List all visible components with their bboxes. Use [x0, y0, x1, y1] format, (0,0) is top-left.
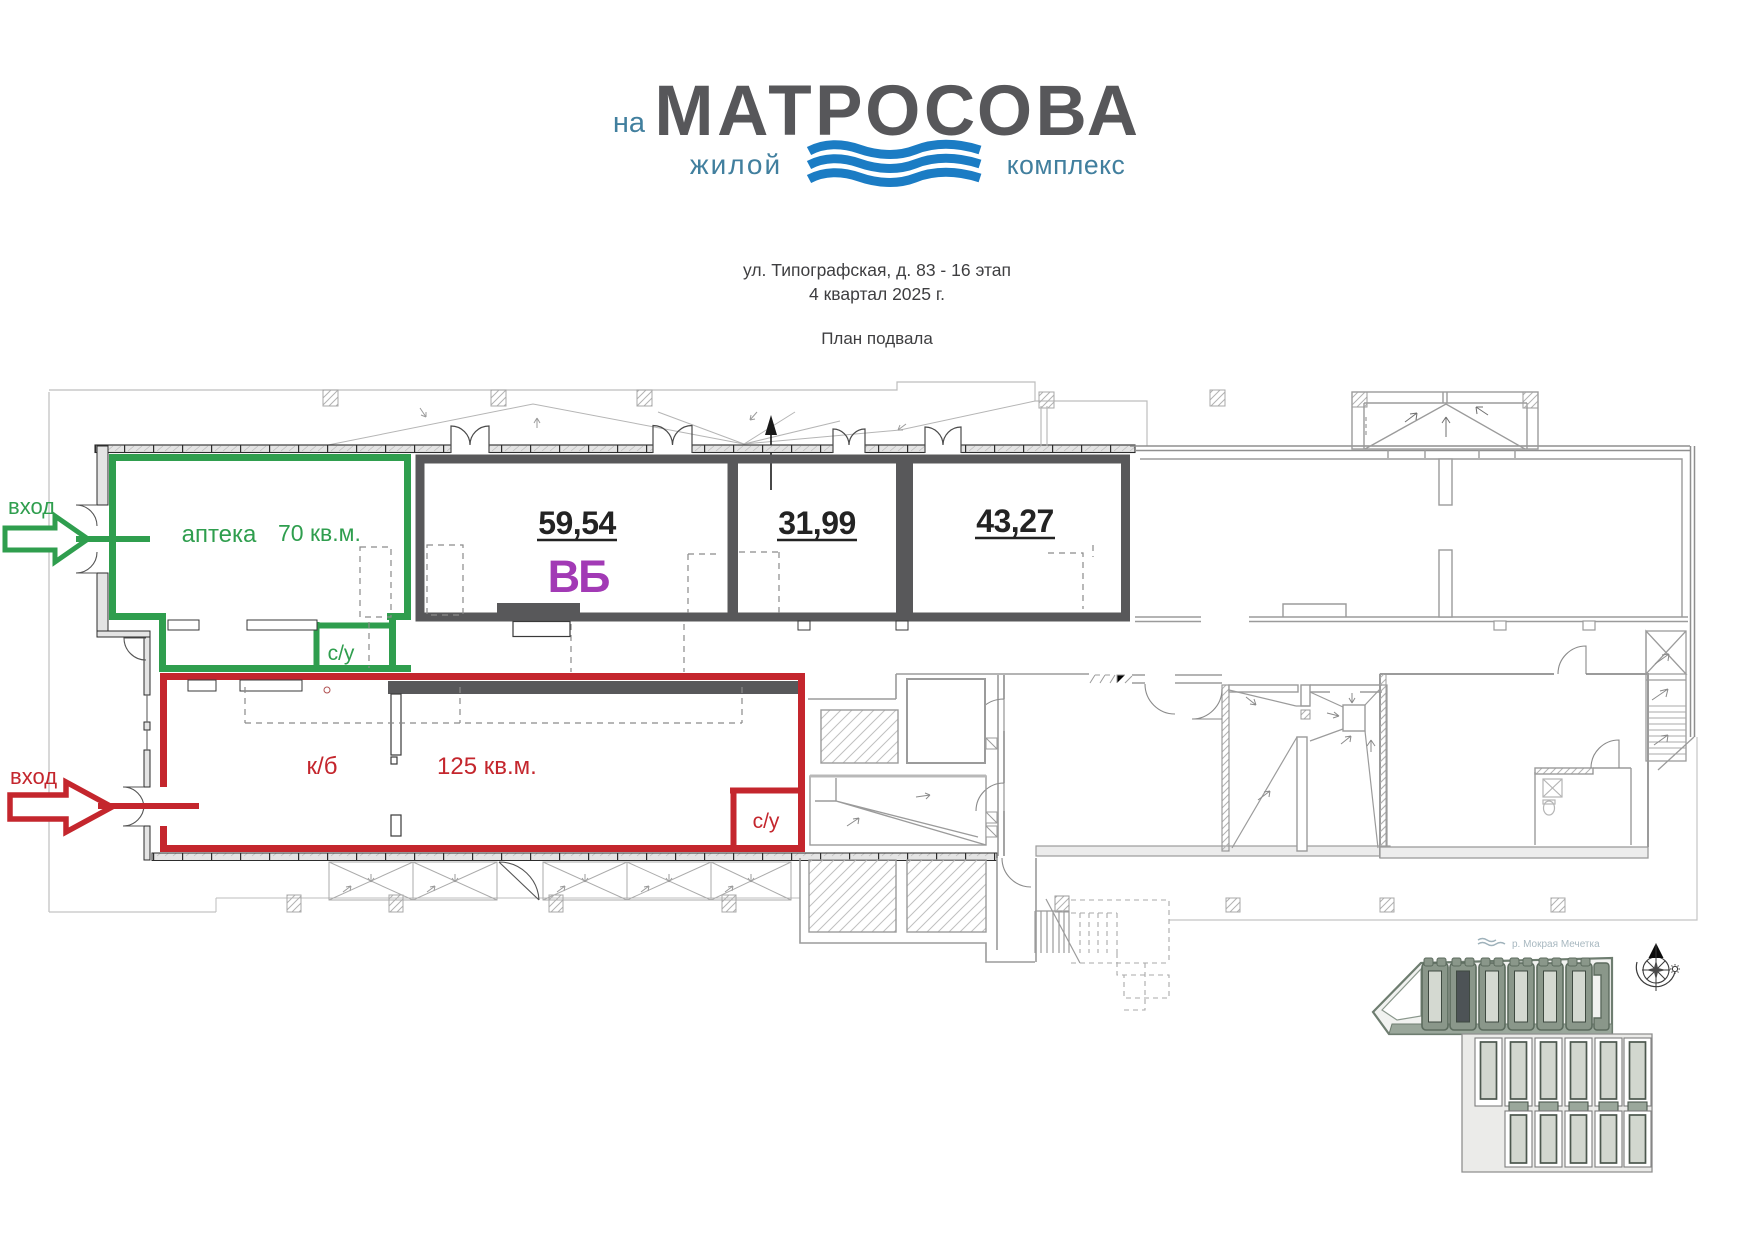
svg-text:ВБ: ВБ — [548, 551, 609, 602]
svg-text:125 кв.м.: 125 кв.м. — [437, 753, 537, 780]
svg-text:4 квартал 2025 г.: 4 квартал 2025 г. — [809, 284, 945, 304]
svg-text:МАТРОСОВА: МАТРОСОВА — [654, 72, 1141, 151]
svg-text:комплекс: комплекс — [1007, 150, 1126, 180]
svg-text:с/у: с/у — [753, 810, 780, 833]
svg-text:вход: вход — [10, 764, 57, 789]
svg-text:с/у: с/у — [328, 642, 355, 665]
svg-text:31,99: 31,99 — [778, 505, 856, 541]
svg-text:59,54: 59,54 — [538, 505, 616, 541]
svg-text:ул. Типографская, д. 83 - 16 э: ул. Типографская, д. 83 - 16 этап — [743, 260, 1011, 280]
svg-text:р. Мокрая Мечетка: р. Мокрая Мечетка — [1512, 939, 1600, 950]
svg-text:43,27: 43,27 — [976, 503, 1054, 539]
svg-text:План подвала: План подвала — [821, 329, 933, 348]
svg-text:жилой: жилой — [690, 149, 782, 180]
svg-text:к/б: к/б — [307, 753, 338, 780]
svg-text:вход: вход — [8, 494, 55, 519]
svg-text:70 кв.м.: 70 кв.м. — [278, 520, 361, 546]
svg-text:на: на — [613, 107, 646, 139]
svg-text:аптека: аптека — [182, 521, 257, 548]
